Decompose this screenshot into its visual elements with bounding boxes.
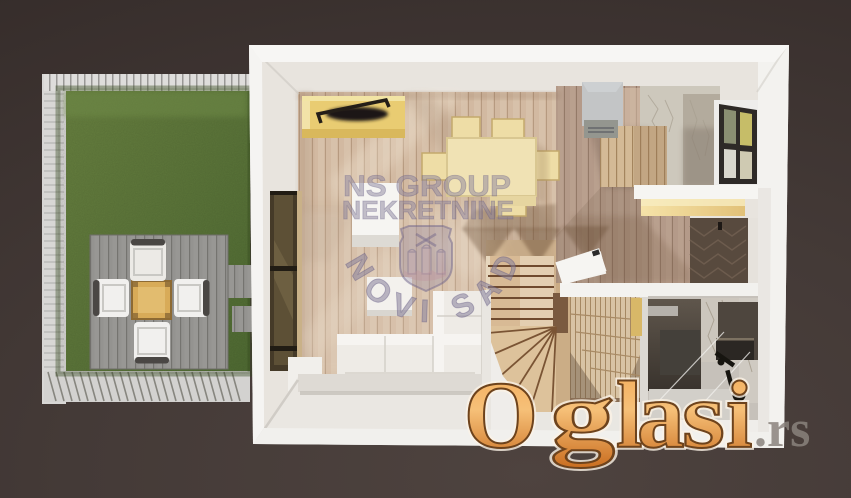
svg-text:i: i <box>726 362 752 468</box>
svg-text:.rs: .rs <box>754 401 810 458</box>
svg-text:g: g <box>550 362 615 468</box>
svg-text:O: O <box>464 362 538 468</box>
svg-text:NEKRETNINE: NEKRETNINE <box>342 197 514 225</box>
svg-text:a: a <box>637 362 685 468</box>
svg-text:s: s <box>682 362 725 468</box>
